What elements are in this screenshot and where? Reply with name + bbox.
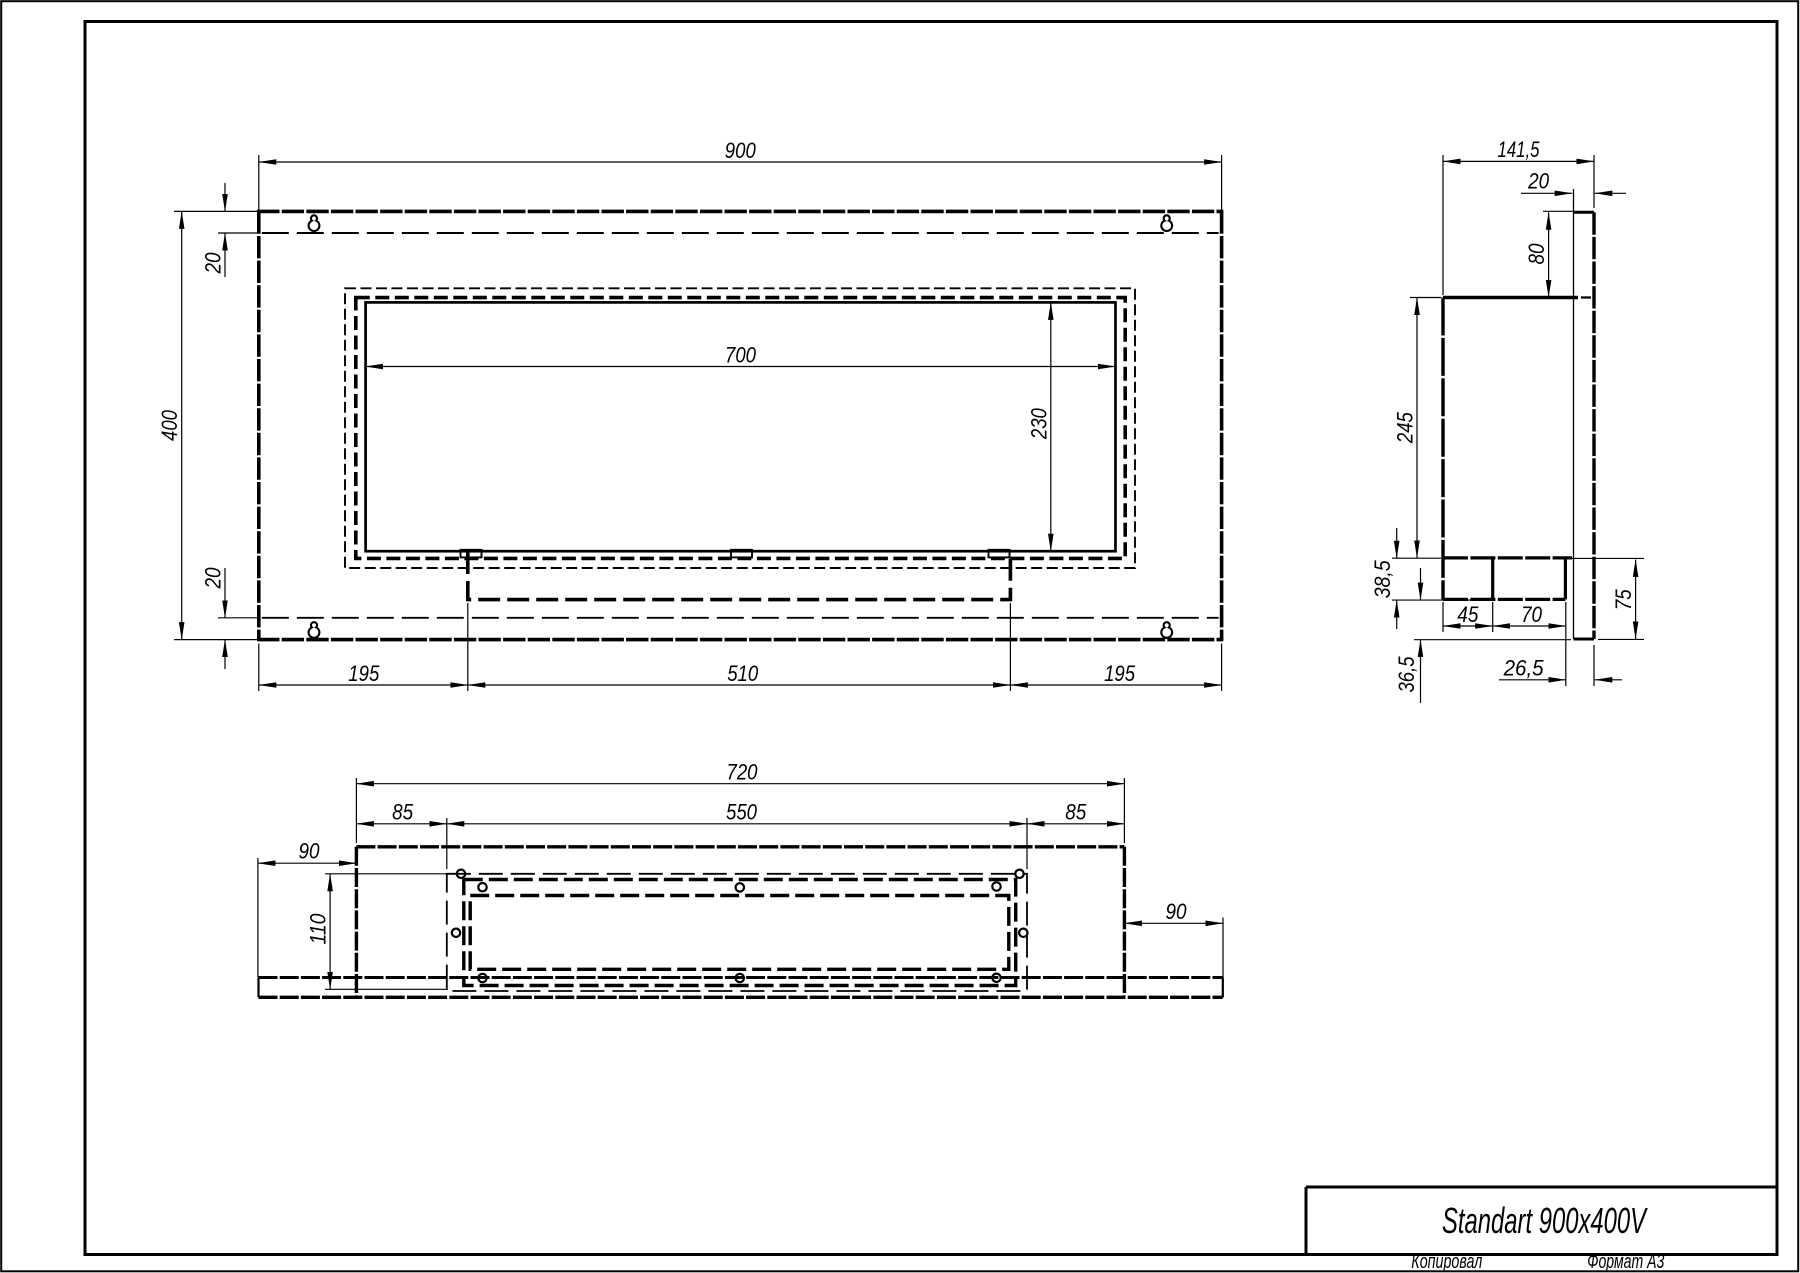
svg-text:Формат А3: Формат А3 <box>1587 1251 1664 1273</box>
svg-text:195: 195 <box>1104 661 1136 686</box>
svg-text:90: 90 <box>1166 899 1188 924</box>
svg-text:20: 20 <box>201 567 226 590</box>
svg-text:510: 510 <box>727 661 759 686</box>
svg-text:230: 230 <box>1026 407 1051 439</box>
svg-text:195: 195 <box>348 661 380 686</box>
svg-text:400: 400 <box>157 409 182 441</box>
svg-text:85: 85 <box>1065 799 1087 824</box>
svg-text:20: 20 <box>201 252 226 275</box>
svg-text:245: 245 <box>1393 411 1418 443</box>
svg-text:90: 90 <box>299 839 321 864</box>
svg-text:85: 85 <box>392 799 414 824</box>
svg-text:550: 550 <box>726 799 758 824</box>
svg-text:70: 70 <box>1521 602 1543 627</box>
svg-text:110: 110 <box>306 913 331 945</box>
svg-text:75: 75 <box>1611 589 1636 611</box>
svg-text:20: 20 <box>1527 169 1550 194</box>
svg-text:26,5: 26,5 <box>1503 655 1545 680</box>
svg-text:36,5: 36,5 <box>1394 656 1419 693</box>
svg-text:Standart 900x400V: Standart 900x400V <box>1442 1200 1648 1241</box>
svg-text:45: 45 <box>1457 602 1479 627</box>
svg-text:900: 900 <box>725 138 757 163</box>
svg-text:141,5: 141,5 <box>1498 137 1541 162</box>
svg-text:Копировал: Копировал <box>1411 1251 1482 1273</box>
svg-text:38,5: 38,5 <box>1370 560 1395 599</box>
svg-text:80: 80 <box>1524 243 1549 265</box>
svg-text:700: 700 <box>725 343 757 368</box>
svg-text:720: 720 <box>727 760 759 785</box>
